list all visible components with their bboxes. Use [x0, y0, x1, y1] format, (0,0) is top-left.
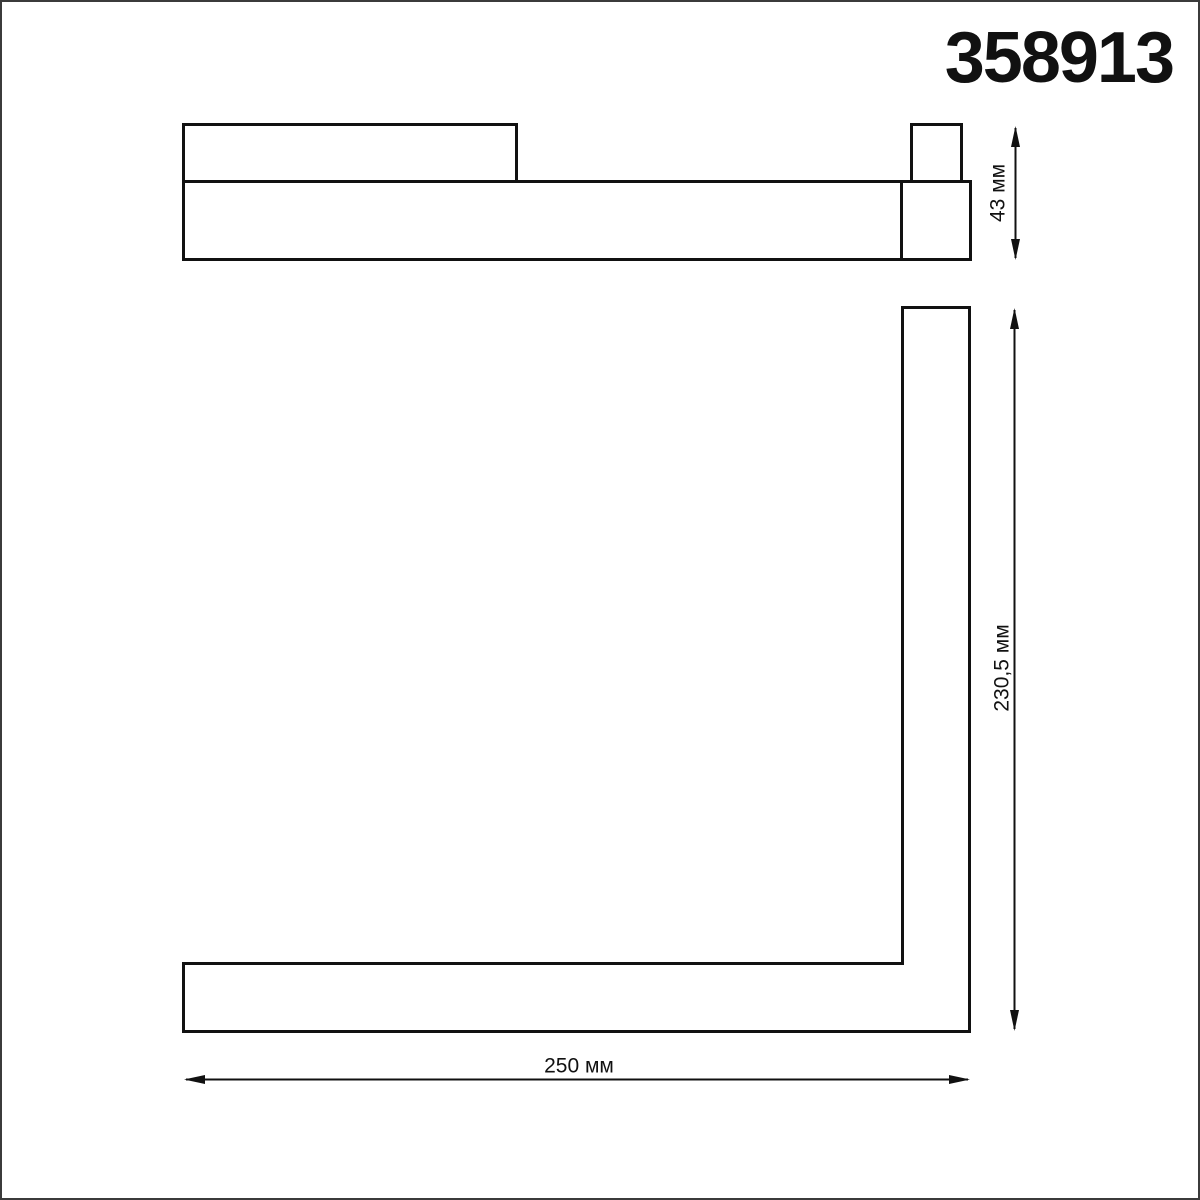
arrowhead-230-down [1010, 1010, 1019, 1031]
dimension-arrowheads [184, 126, 1020, 1084]
arrowhead-43-up [1011, 126, 1020, 147]
front-view-l-profile [184, 308, 970, 1032]
dim-label-front-width: 250 мм [544, 1056, 614, 1077]
dim-label-front-height: 230,5 мм [992, 624, 1013, 711]
arrowhead-230-up [1010, 308, 1019, 329]
arrowhead-250-left [184, 1075, 205, 1084]
side-profile-view [184, 125, 971, 260]
dim-label-side-height: 43 мм [988, 164, 1009, 222]
side-view-left-block [184, 125, 517, 182]
side-view-connector-block [912, 125, 962, 182]
side-view-main-bar [184, 182, 971, 260]
drawing-canvas: 358913 [0, 0, 1200, 1200]
dimension-lines [186, 128, 1016, 1080]
arrowhead-250-right [949, 1075, 970, 1084]
technical-drawing [2, 2, 1200, 1200]
front-view [184, 308, 970, 1032]
arrowhead-43-down [1011, 239, 1020, 260]
